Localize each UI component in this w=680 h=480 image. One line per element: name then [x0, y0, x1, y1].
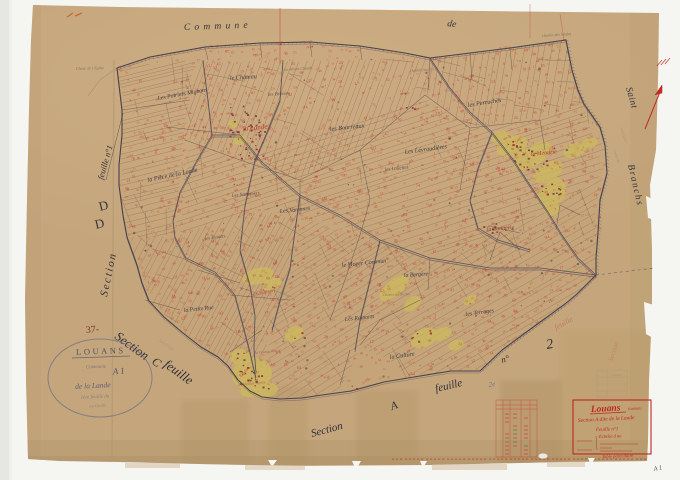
svg-text:92: 92	[398, 118, 402, 122]
svg-text:93: 93	[224, 243, 228, 247]
svg-text:17: 17	[496, 145, 500, 149]
svg-text:66: 66	[413, 262, 417, 266]
svg-text:77: 77	[585, 238, 589, 242]
svg-text:41: 41	[450, 186, 454, 190]
svg-text:89: 89	[201, 314, 206, 319]
svg-text:25: 25	[394, 239, 398, 243]
svg-text:48: 48	[139, 135, 143, 139]
svg-text:82: 82	[432, 209, 436, 213]
svg-text:44: 44	[316, 229, 320, 233]
svg-text:78: 78	[248, 157, 252, 161]
svg-text:1: 1	[449, 368, 451, 372]
svg-text:68: 68	[186, 241, 190, 245]
svg-text:91: 91	[237, 123, 241, 128]
svg-text:32: 32	[259, 274, 263, 278]
svg-text:29: 29	[474, 134, 479, 139]
svg-text:41: 41	[464, 77, 468, 81]
svg-text:6: 6	[486, 200, 488, 204]
svg-text:59: 59	[211, 94, 215, 98]
svg-text:17: 17	[435, 306, 439, 310]
svg-text:47: 47	[374, 272, 378, 276]
svg-text:34: 34	[341, 274, 345, 278]
svg-text:69: 69	[328, 49, 332, 53]
svg-text:46: 46	[475, 228, 479, 232]
svg-text:73: 73	[424, 324, 429, 329]
svg-text:17: 17	[431, 190, 435, 194]
svg-text:44: 44	[536, 59, 540, 63]
svg-text:24: 24	[162, 250, 166, 254]
svg-text:58: 58	[375, 231, 379, 235]
svg-text:53: 53	[540, 247, 544, 251]
svg-text:89: 89	[478, 349, 482, 353]
svg-text:32: 32	[527, 67, 531, 71]
svg-text:18: 18	[314, 175, 318, 179]
svg-text:51: 51	[324, 197, 328, 201]
svg-text:8: 8	[498, 169, 500, 173]
svg-text:13: 13	[585, 213, 589, 217]
svg-text:96: 96	[434, 271, 438, 275]
svg-text:13: 13	[458, 342, 462, 346]
svg-text:38: 38	[393, 114, 397, 118]
svg-text:91: 91	[465, 278, 469, 282]
svg-text:37: 37	[379, 151, 383, 155]
svg-text:69: 69	[288, 248, 292, 252]
svg-text:77: 77	[503, 344, 507, 348]
svg-text:15: 15	[593, 192, 598, 197]
svg-text:31: 31	[499, 90, 503, 94]
svg-text:95: 95	[491, 261, 495, 265]
svg-text:68: 68	[517, 197, 521, 201]
svg-text:35: 35	[291, 61, 295, 66]
svg-text:9: 9	[390, 178, 392, 182]
svg-text:81: 81	[485, 269, 489, 273]
svg-text:47: 47	[270, 330, 274, 335]
svg-text:2e: 2e	[488, 380, 496, 389]
svg-text:37: 37	[279, 285, 283, 289]
svg-text:73: 73	[232, 82, 236, 86]
svg-text:19: 19	[470, 162, 475, 167]
svg-text:72: 72	[433, 317, 437, 321]
svg-text:32: 32	[386, 78, 390, 82]
svg-text:19: 19	[522, 67, 526, 72]
svg-text:68: 68	[276, 328, 280, 333]
svg-text:17: 17	[345, 143, 349, 147]
svg-text:71: 71	[466, 365, 470, 369]
svg-text:95: 95	[482, 339, 486, 343]
svg-text:24: 24	[437, 92, 441, 96]
svg-text:9: 9	[371, 356, 373, 360]
svg-text:12: 12	[370, 340, 374, 344]
svg-text:42: 42	[179, 296, 183, 300]
svg-text:32: 32	[227, 342, 231, 346]
svg-text:72: 72	[427, 316, 431, 320]
svg-text:92: 92	[342, 167, 346, 171]
svg-text:11: 11	[510, 241, 514, 245]
svg-text:73: 73	[167, 167, 171, 171]
svg-text:8: 8	[430, 273, 432, 277]
svg-text:53: 53	[592, 276, 596, 280]
svg-text:85: 85	[541, 63, 545, 68]
svg-text:23: 23	[453, 250, 457, 254]
svg-text:au Gestin: au Gestin	[89, 403, 107, 409]
svg-text:54: 54	[284, 125, 288, 130]
svg-text:de la Lande: de la Lande	[75, 380, 112, 391]
svg-text:5: 5	[459, 212, 461, 216]
svg-text:68: 68	[570, 103, 574, 107]
svg-text:89: 89	[572, 249, 576, 253]
svg-text:82: 82	[328, 166, 333, 172]
svg-text:51: 51	[201, 137, 205, 141]
svg-text:36: 36	[142, 188, 147, 194]
svg-text:51: 51	[147, 275, 151, 279]
svg-text:(canton): (canton)	[628, 405, 642, 411]
svg-text:85: 85	[165, 309, 169, 313]
svg-text:51: 51	[227, 151, 231, 155]
svg-text:92: 92	[504, 287, 508, 291]
svg-text:24: 24	[278, 176, 283, 181]
svg-text:87: 87	[554, 161, 558, 165]
svg-text:71: 71	[491, 321, 495, 325]
svg-text:34: 34	[179, 199, 183, 203]
svg-text:43: 43	[464, 283, 468, 287]
svg-text:63: 63	[528, 226, 532, 231]
svg-text:27: 27	[137, 93, 141, 97]
svg-text:12: 12	[242, 372, 246, 376]
svg-text:64: 64	[297, 366, 301, 370]
svg-text:99: 99	[209, 44, 213, 48]
svg-text:2: 2	[435, 111, 437, 116]
svg-text:32: 32	[326, 277, 330, 281]
svg-text:85: 85	[165, 239, 169, 243]
svg-text:35: 35	[384, 247, 388, 251]
svg-text:15: 15	[188, 299, 192, 303]
svg-text:31: 31	[309, 266, 313, 270]
svg-text:Chem. de l Eglise: Chem. de l Eglise	[76, 65, 105, 71]
svg-text:87: 87	[173, 79, 178, 84]
svg-text:66: 66	[347, 379, 351, 383]
svg-text:18: 18	[535, 265, 539, 269]
svg-text:41: 41	[450, 287, 454, 292]
svg-text:43: 43	[277, 301, 281, 305]
svg-text:13: 13	[491, 79, 495, 84]
svg-text:17: 17	[347, 175, 352, 181]
svg-text:Commune: Commune	[86, 365, 107, 371]
svg-text:97: 97	[259, 214, 263, 218]
svg-text:62: 62	[583, 127, 587, 131]
svg-text:45: 45	[374, 205, 378, 209]
svg-text:56: 56	[570, 122, 574, 126]
svg-text:26: 26	[338, 80, 342, 84]
svg-text:81: 81	[335, 205, 339, 209]
svg-text:53: 53	[181, 162, 185, 166]
svg-text:95: 95	[603, 163, 607, 167]
svg-text:67: 67	[201, 261, 205, 265]
svg-text:37-: 37-	[85, 324, 99, 336]
svg-text:19: 19	[359, 190, 363, 195]
svg-text:9: 9	[402, 56, 404, 60]
svg-text:71: 71	[425, 103, 429, 107]
svg-text:13: 13	[354, 225, 358, 229]
svg-text:43: 43	[318, 69, 322, 73]
svg-text:84: 84	[419, 128, 423, 132]
svg-text:LOUANS: LOUANS	[76, 345, 126, 357]
svg-text:25: 25	[326, 293, 331, 298]
svg-text:5: 5	[223, 287, 225, 291]
svg-text:39: 39	[171, 146, 176, 151]
svg-text:14: 14	[312, 324, 316, 328]
svg-text:92: 92	[162, 267, 166, 271]
svg-text:63: 63	[406, 91, 410, 95]
svg-text:96: 96	[585, 180, 589, 184]
svg-text:54: 54	[416, 183, 421, 188]
svg-text:32: 32	[269, 180, 273, 184]
svg-text:91: 91	[516, 146, 520, 150]
svg-text:95: 95	[533, 110, 537, 115]
svg-text:8: 8	[509, 260, 511, 264]
svg-text:84: 84	[524, 127, 528, 131]
svg-text:86: 86	[552, 247, 557, 252]
svg-text:91: 91	[406, 219, 410, 223]
svg-text:A 1: A 1	[111, 365, 125, 376]
svg-text:17: 17	[486, 299, 490, 304]
svg-text:54: 54	[222, 322, 226, 326]
svg-text:47: 47	[302, 242, 306, 246]
svg-text:16: 16	[326, 375, 330, 379]
svg-text:41: 41	[546, 80, 550, 84]
svg-text:87: 87	[510, 327, 514, 332]
svg-text:68: 68	[554, 231, 558, 235]
svg-text:66: 66	[247, 101, 251, 105]
svg-text:14: 14	[201, 80, 205, 85]
svg-text:61: 61	[376, 327, 380, 331]
svg-text:76: 76	[131, 157, 135, 161]
svg-text:5: 5	[277, 41, 279, 46]
svg-text:62: 62	[407, 225, 411, 229]
svg-text:34: 34	[597, 215, 601, 219]
svg-text:38: 38	[532, 52, 536, 56]
svg-text:77: 77	[304, 266, 309, 271]
svg-text:73: 73	[368, 345, 372, 349]
svg-text:29: 29	[454, 193, 458, 198]
svg-text:62: 62	[421, 111, 425, 115]
svg-text:75: 75	[525, 91, 529, 95]
svg-text:6: 6	[382, 68, 384, 72]
svg-text:96: 96	[294, 153, 298, 157]
svg-text:86: 86	[511, 147, 515, 151]
svg-text:19: 19	[464, 299, 468, 303]
svg-text:22: 22	[533, 195, 537, 199]
svg-text:19: 19	[271, 87, 275, 91]
svg-text:86: 86	[565, 249, 569, 254]
svg-text:96: 96	[125, 187, 129, 191]
svg-text:97: 97	[484, 190, 488, 194]
svg-text:34: 34	[460, 168, 464, 173]
svg-text:77: 77	[274, 341, 278, 345]
svg-text:59: 59	[220, 228, 224, 232]
svg-text:18: 18	[377, 283, 381, 287]
svg-text:97: 97	[225, 50, 229, 54]
svg-text:1: 1	[481, 293, 483, 297]
svg-text:41: 41	[456, 306, 460, 310]
svg-text:91: 91	[229, 142, 233, 146]
svg-text:38: 38	[357, 295, 362, 301]
svg-text:99: 99	[472, 180, 476, 184]
svg-text:18: 18	[236, 330, 240, 334]
svg-text:12: 12	[532, 231, 536, 235]
svg-text:69: 69	[502, 215, 506, 219]
svg-text:23: 23	[514, 116, 518, 120]
svg-text:88: 88	[467, 344, 471, 348]
svg-text:17: 17	[132, 167, 136, 172]
svg-text:25: 25	[463, 56, 467, 60]
svg-text:77: 77	[576, 147, 580, 151]
svg-text:1: 1	[185, 83, 187, 88]
svg-text:64: 64	[188, 291, 192, 295]
svg-text:29: 29	[177, 208, 181, 213]
svg-text:6: 6	[332, 343, 334, 347]
svg-text:de: de	[447, 19, 457, 30]
svg-text:94: 94	[514, 309, 518, 314]
svg-text:87: 87	[301, 261, 305, 265]
svg-text:82: 82	[178, 238, 182, 242]
svg-text:44: 44	[419, 237, 423, 241]
svg-text:23: 23	[293, 50, 297, 55]
svg-text:86: 86	[280, 236, 284, 240]
svg-text:91: 91	[317, 155, 321, 160]
svg-text:89: 89	[369, 168, 373, 172]
svg-text:résumé: résumé	[611, 373, 622, 377]
svg-text:74: 74	[446, 130, 450, 134]
svg-text:76: 76	[512, 316, 516, 320]
svg-text:59: 59	[476, 283, 480, 288]
svg-text:49: 49	[544, 190, 548, 195]
svg-text:59: 59	[407, 229, 411, 233]
svg-text:73: 73	[264, 55, 268, 60]
svg-text:74: 74	[240, 270, 244, 275]
svg-text:19: 19	[452, 331, 456, 335]
svg-text:82: 82	[139, 79, 143, 83]
svg-text:12: 12	[540, 222, 544, 226]
svg-text:28: 28	[324, 335, 328, 339]
svg-text:83: 83	[138, 256, 143, 262]
svg-text:35: 35	[158, 135, 162, 139]
svg-text:29: 29	[327, 263, 331, 267]
svg-text:6: 6	[375, 360, 377, 365]
svg-text:25: 25	[597, 186, 602, 192]
svg-text:Échelle d au: Échelle d au	[598, 433, 622, 439]
svg-text:11: 11	[580, 196, 584, 200]
svg-text:3: 3	[181, 195, 183, 199]
svg-text:79: 79	[507, 135, 511, 139]
svg-text:64: 64	[275, 215, 279, 219]
svg-text:86: 86	[589, 173, 594, 179]
svg-text:73: 73	[333, 222, 337, 226]
svg-text:Feuille n°1: Feuille n°1	[595, 427, 619, 433]
svg-text:75: 75	[316, 345, 320, 349]
svg-text:76: 76	[340, 48, 344, 52]
svg-text:78: 78	[298, 324, 302, 329]
svg-text:8: 8	[381, 84, 383, 88]
svg-text:76: 76	[215, 203, 219, 207]
svg-text:17: 17	[499, 269, 503, 273]
svg-text:81: 81	[481, 207, 485, 211]
svg-text:83: 83	[284, 51, 288, 55]
svg-text:87: 87	[244, 42, 248, 46]
svg-text:52: 52	[337, 136, 341, 140]
svg-text:69: 69	[499, 250, 503, 254]
svg-text:87: 87	[251, 91, 255, 95]
svg-text:93: 93	[269, 127, 273, 132]
svg-text:4: 4	[247, 349, 249, 353]
svg-text:35: 35	[388, 161, 392, 165]
